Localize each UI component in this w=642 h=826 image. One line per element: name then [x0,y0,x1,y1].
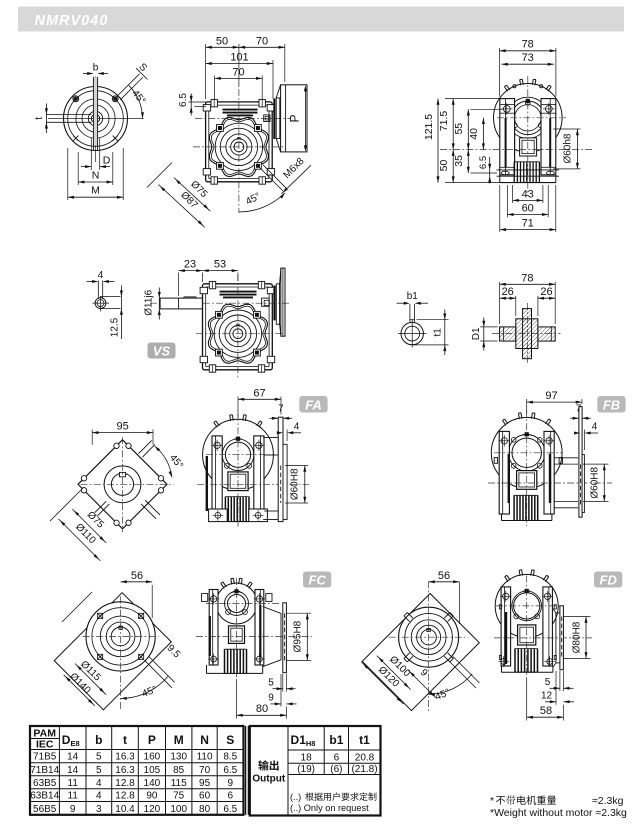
svg-text:Ø60H8: Ø60H8 [290,468,301,500]
svg-text:M: M [174,733,184,747]
svg-text:78: 78 [521,272,533,284]
svg-text:35: 35 [453,155,465,167]
svg-text:t1: t1 [359,733,370,747]
svg-text:D1: D1 [471,327,482,340]
svg-text:16.3: 16.3 [115,752,135,763]
svg-text:115: 115 [171,778,187,789]
svg-text:N: N [200,733,209,747]
svg-text:70: 70 [199,765,211,776]
svg-text:60: 60 [522,203,534,215]
svg-text:IEC: IEC [36,739,54,751]
svg-text:95: 95 [199,778,211,789]
svg-text:71B14: 71B14 [30,765,59,776]
svg-text:FC: FC [309,573,327,588]
svg-text:(21.8): (21.8) [351,764,377,775]
svg-text:23: 23 [184,259,196,271]
svg-text:NMRV040: NMRV040 [35,13,109,29]
svg-text:14: 14 [67,765,79,776]
svg-text:70: 70 [232,66,244,78]
svg-text:50: 50 [438,160,450,172]
svg-text:75: 75 [173,791,185,802]
svg-text:t: t [34,117,45,120]
svg-text:7: 7 [576,403,582,414]
svg-text:11: 11 [68,778,79,789]
svg-text:6.5: 6.5 [178,93,189,107]
svg-text:b1: b1 [407,291,419,302]
svg-text:*: * [490,795,494,807]
svg-text:6: 6 [334,752,340,763]
svg-text:6.5: 6.5 [223,804,237,815]
svg-text:Ø60h8: Ø60h8 [563,133,574,163]
svg-text:*Weight without motor ≈2.3kg: *Weight without motor ≈2.3kg [490,807,627,819]
svg-text:55: 55 [453,123,465,135]
svg-text:P: P [148,733,156,747]
svg-text:(..) Only on request: (..) Only on request [290,803,369,813]
svg-text:73: 73 [522,52,534,64]
svg-text:11: 11 [68,791,79,802]
svg-text:4: 4 [98,270,104,281]
svg-text:(6): (6) [330,764,342,775]
svg-text:8.5: 8.5 [223,752,237,763]
svg-text:VS: VS [153,343,171,358]
svg-text:100: 100 [170,804,187,815]
svg-text:5: 5 [545,677,551,688]
svg-text:101: 101 [230,52,248,64]
svg-text:12.8: 12.8 [115,791,135,802]
svg-text:90: 90 [146,791,158,802]
svg-text:85: 85 [173,765,185,776]
svg-text:Ø60H8: Ø60H8 [589,467,600,499]
svg-text:95: 95 [116,421,128,433]
svg-text:M: M [91,185,100,197]
svg-text:6: 6 [228,791,234,802]
svg-text:4: 4 [294,421,300,432]
svg-text:110: 110 [197,752,213,763]
svg-text:63B5: 63B5 [33,778,57,789]
svg-text:S: S [226,733,234,747]
svg-text:10.4: 10.4 [115,804,135,815]
svg-text:70: 70 [256,35,268,47]
svg-text:4: 4 [592,422,598,433]
svg-text:D: D [103,155,111,167]
svg-text:9: 9 [70,804,76,815]
svg-text:(19): (19) [297,764,315,775]
svg-text:3: 3 [96,804,102,815]
svg-text:t: t [123,733,127,747]
svg-text:Ø80H8: Ø80H8 [572,621,583,653]
svg-text:58: 58 [540,705,552,717]
svg-text:71: 71 [522,218,534,230]
svg-text:(..): (..) [290,792,301,802]
svg-text:N: N [92,170,100,182]
svg-text:b: b [95,733,102,747]
svg-text:130: 130 [170,752,187,763]
svg-text:Output: Output [252,774,285,785]
svg-text:80: 80 [199,804,211,815]
svg-text:63B14: 63B14 [30,791,59,802]
svg-text:FA: FA [305,397,322,412]
svg-text:20.8: 20.8 [355,752,375,763]
svg-text:160: 160 [144,752,161,763]
svg-text:50: 50 [216,35,228,47]
svg-text:≈2.3kg: ≈2.3kg [592,795,624,807]
svg-text:4: 4 [96,778,102,789]
svg-text:56B5: 56B5 [33,804,57,815]
svg-text:121.5: 121.5 [423,114,435,140]
svg-text:t1: t1 [433,328,444,337]
svg-text:b: b [93,63,99,74]
svg-text:Ø95H8: Ø95H8 [292,620,303,652]
svg-text:5: 5 [96,752,102,763]
svg-text:26: 26 [502,286,514,298]
svg-text:4: 4 [96,791,102,802]
svg-text:56: 56 [438,570,450,582]
svg-text:80: 80 [256,703,268,715]
svg-text:43: 43 [522,188,534,200]
svg-text:9: 9 [268,693,274,704]
svg-text:6.5: 6.5 [223,765,237,776]
svg-text:26: 26 [540,286,552,298]
svg-text:12.8: 12.8 [115,778,135,789]
svg-text:60: 60 [199,791,211,802]
svg-text:FB: FB [603,397,620,412]
svg-text:PAM: PAM [33,727,56,739]
svg-text:16.3: 16.3 [115,765,135,776]
svg-text:7: 7 [278,404,284,415]
svg-text:78: 78 [522,39,534,51]
svg-text:105: 105 [144,765,161,776]
svg-text:67: 67 [253,387,265,399]
svg-text:56: 56 [131,570,143,582]
svg-text:9: 9 [228,778,234,789]
svg-text:FD: FD [600,573,618,588]
svg-text:6.5: 6.5 [478,156,489,169]
svg-text:b1: b1 [329,733,343,747]
svg-text:71.5: 71.5 [438,111,450,132]
svg-text:18: 18 [301,752,313,763]
svg-text:12: 12 [541,690,553,701]
svg-text:40: 40 [468,128,480,140]
svg-text:Ø11j6: Ø11j6 [144,289,155,315]
svg-text:12.5: 12.5 [109,317,120,337]
svg-text:120: 120 [144,804,161,815]
svg-text:14: 14 [67,752,79,763]
svg-text:5: 5 [96,765,102,776]
svg-text:53: 53 [214,259,226,271]
svg-text:140: 140 [144,778,161,789]
svg-text:5: 5 [268,677,274,688]
svg-text:71B5: 71B5 [33,752,57,763]
svg-text:97: 97 [545,390,557,402]
svg-text:P: P [288,114,302,122]
